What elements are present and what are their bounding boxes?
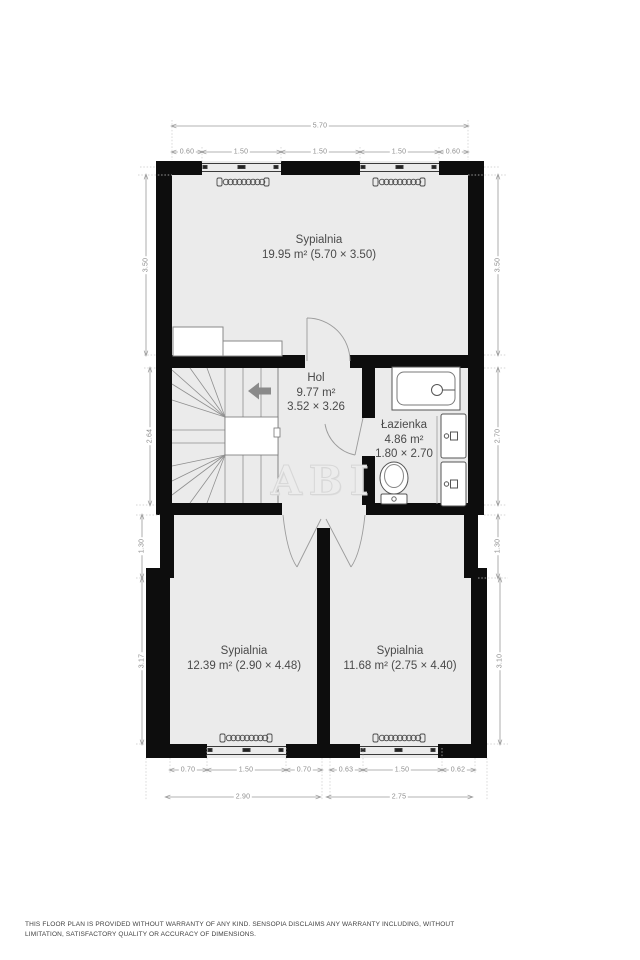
dim-bottom-seg: 0.70 [179, 767, 197, 774]
room-name: Sypialnia [187, 644, 301, 659]
room-size: 12.39 m² (2.90 × 4.48) [187, 659, 301, 674]
dim-top-seg: 0.60 [178, 149, 196, 156]
room-name: Sypialnia [262, 233, 376, 248]
room-size: 3.52 × 3.26 [287, 400, 345, 415]
room-name: Łazienka [375, 418, 433, 433]
dim-bottom-seg: 0.70 [295, 767, 313, 774]
room-label-bedroom-right: Sypialnia 11.68 m² (2.75 × 4.40) [343, 644, 456, 673]
room-label-hall: Hol 9.77 m² 3.52 × 3.26 [287, 371, 345, 415]
room-name: Sypialnia [343, 644, 456, 659]
room-size: 11.68 m² (2.75 × 4.40) [343, 659, 456, 674]
room-area: 4.86 m² [375, 433, 433, 448]
dim-right: 2.70 [495, 427, 502, 445]
floor-plan-page: ABI Sypialnia 19.95 m² (5.70 × 3.50) Hol… [0, 0, 640, 960]
room-area: 9.77 m² [287, 386, 345, 401]
room-size: 1.80 × 2.70 [375, 447, 433, 462]
dim-right: 3.10 [497, 652, 504, 670]
room-label-bathroom: Łazienka 4.86 m² 1.80 × 2.70 [375, 418, 433, 462]
bathroom-cabinet-icon [441, 462, 466, 506]
toilet-icon [380, 462, 408, 504]
dim-top-seg: 1.50 [232, 149, 250, 156]
dim-top-seg: 0.60 [444, 149, 462, 156]
dim-right: 1.30 [495, 537, 502, 555]
dim-bottom-seg: 0.63 [337, 767, 355, 774]
dim-left: 3.50 [143, 256, 150, 274]
room-label-bedroom-top: Sypialnia 19.95 m² (5.70 × 3.50) [262, 233, 376, 262]
dim-left: 1.30 [139, 537, 146, 555]
watermark: ABI [271, 458, 376, 505]
dim-bottom-seg: 1.50 [237, 767, 255, 774]
room-size: 19.95 m² (5.70 × 3.50) [262, 248, 376, 263]
dim-top-seg: 1.50 [311, 149, 329, 156]
dim-bottom-seg: 0.62 [449, 767, 467, 774]
dim-top-overall: 5.70 [311, 123, 329, 130]
bathroom-cabinet-icon [441, 414, 466, 458]
dim-left: 2.64 [147, 427, 154, 445]
dim-bottom-overall-left: 2.90 [234, 794, 252, 801]
dim-right: 3.50 [495, 256, 502, 274]
disclaimer-text: THIS FLOOR PLAN IS PROVIDED WITHOUT WARR… [25, 920, 477, 941]
dim-bottom-overall-right: 2.75 [390, 794, 408, 801]
dim-bottom-seg: 1.50 [393, 767, 411, 774]
dim-left: 3.17 [139, 652, 146, 670]
room-label-bedroom-left: Sypialnia 12.39 m² (2.90 × 4.48) [187, 644, 301, 673]
dim-top-seg: 1.50 [390, 149, 408, 156]
room-name: Hol [287, 371, 345, 386]
bathtub-icon [392, 367, 460, 410]
